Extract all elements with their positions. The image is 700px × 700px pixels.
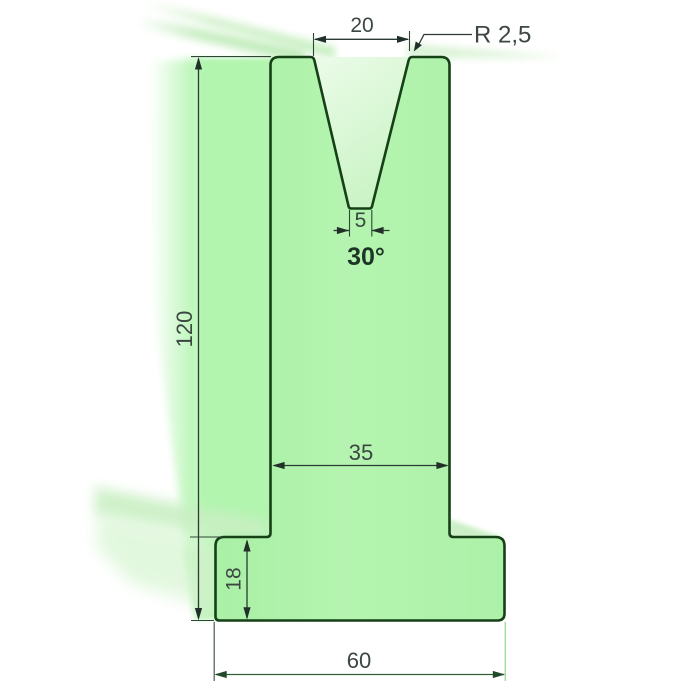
svg-text:5: 5 — [355, 209, 367, 232]
svg-text:R 2,5: R 2,5 — [474, 22, 531, 49]
svg-text:35: 35 — [349, 440, 373, 465]
svg-text:18: 18 — [223, 567, 246, 590]
svg-text:120: 120 — [172, 311, 197, 348]
svg-text:20: 20 — [350, 14, 373, 37]
svg-text:30°: 30° — [347, 243, 385, 271]
svg-text:60: 60 — [347, 648, 371, 673]
